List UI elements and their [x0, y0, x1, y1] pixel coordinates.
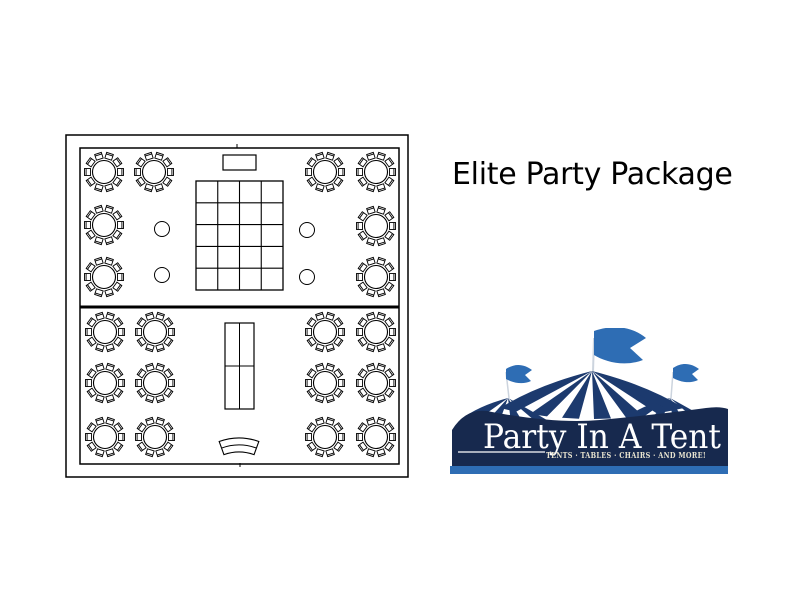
flag-icon [506, 365, 532, 383]
round-table [306, 363, 345, 402]
cake-table [223, 155, 256, 170]
chair [357, 380, 363, 387]
chair [155, 184, 164, 192]
chair [146, 395, 155, 403]
chair [164, 318, 173, 327]
chair [377, 184, 386, 192]
chair [106, 449, 115, 457]
chair [87, 423, 96, 432]
chair [316, 395, 325, 403]
logo-tagline: TENTS · TABLES · CHAIRS · AND MORE! [546, 451, 706, 461]
chair [367, 312, 376, 320]
chair [119, 434, 125, 441]
chair [385, 442, 394, 451]
chair [334, 369, 343, 378]
chair [118, 222, 124, 229]
chair [306, 434, 312, 441]
chair [105, 237, 114, 245]
chair [326, 449, 335, 457]
chair [113, 263, 122, 272]
chair [307, 388, 316, 397]
chair [137, 369, 146, 378]
chair [358, 231, 367, 240]
chair [334, 318, 343, 327]
chair [114, 318, 123, 327]
chair [377, 206, 386, 214]
chair [136, 380, 142, 387]
chair [385, 282, 394, 291]
chair [86, 282, 95, 291]
chair [105, 184, 114, 192]
table-top [365, 426, 388, 449]
chair [86, 263, 95, 272]
chair [146, 417, 155, 425]
chair [316, 312, 325, 320]
chair [106, 312, 115, 320]
chair [367, 184, 376, 192]
chair [85, 274, 91, 281]
chair [137, 337, 146, 346]
chair [367, 152, 376, 160]
chair [87, 337, 96, 346]
chair [86, 434, 92, 441]
table-top [143, 161, 166, 184]
chair [390, 169, 396, 176]
chair [105, 257, 114, 265]
table-top [314, 426, 337, 449]
chair [367, 238, 376, 246]
chair [85, 222, 91, 229]
chair [357, 329, 363, 336]
chair [367, 257, 376, 265]
chair [119, 380, 125, 387]
chair [377, 449, 386, 457]
chair [136, 329, 142, 336]
chair [95, 152, 104, 160]
chair [87, 388, 96, 397]
chair [358, 442, 367, 451]
chair [137, 442, 146, 451]
flag-pole [593, 338, 594, 372]
chair [358, 388, 367, 397]
chair [119, 329, 125, 336]
chair [307, 442, 316, 451]
round-table [357, 257, 396, 296]
chair [339, 169, 345, 176]
chair [169, 434, 175, 441]
chair [307, 423, 316, 432]
chair [146, 312, 155, 320]
chair [390, 380, 396, 387]
chair [96, 395, 105, 403]
chair [385, 212, 394, 221]
chair [307, 318, 316, 327]
chair [334, 158, 343, 167]
chair [164, 388, 173, 397]
chair [163, 158, 172, 167]
chair [326, 152, 335, 160]
chair [156, 395, 165, 403]
chair [306, 380, 312, 387]
round-table [86, 312, 125, 351]
chair [156, 417, 165, 425]
round-table [85, 205, 124, 244]
chair [145, 184, 154, 192]
chair [105, 289, 114, 297]
table-top [144, 372, 167, 395]
chair [156, 363, 165, 371]
table-top [93, 214, 116, 237]
chair [86, 230, 95, 239]
chair [357, 274, 363, 281]
chair [146, 363, 155, 371]
chair [316, 417, 325, 425]
round-table [357, 363, 396, 402]
chair [106, 363, 115, 371]
chair [86, 211, 95, 220]
table-top [314, 372, 337, 395]
chair [105, 152, 114, 160]
chair [118, 169, 124, 176]
chair [326, 344, 335, 352]
chair [385, 318, 394, 327]
chair [326, 417, 335, 425]
chair [137, 388, 146, 397]
round-table [86, 417, 125, 456]
table-top [93, 161, 116, 184]
chair [106, 344, 115, 352]
chair [377, 395, 386, 403]
flag-icon [673, 364, 699, 382]
chair [164, 423, 173, 432]
chair [377, 417, 386, 425]
page-title: Elite Party Package [452, 157, 733, 192]
chair [164, 369, 173, 378]
chair [367, 363, 376, 371]
round-table [136, 312, 175, 351]
chair [357, 434, 363, 441]
table-top [365, 266, 388, 289]
table-top [314, 161, 337, 184]
banner-strip [450, 466, 728, 474]
table-top [365, 215, 388, 238]
chair [96, 363, 105, 371]
cocktail-table [300, 270, 315, 285]
chair [114, 369, 123, 378]
table-top [365, 372, 388, 395]
chair [358, 177, 367, 186]
round-table [86, 363, 125, 402]
round-table [357, 152, 396, 191]
chair [106, 417, 115, 425]
chair [385, 369, 394, 378]
chair [377, 238, 386, 246]
round-table [136, 417, 175, 456]
chair [339, 329, 345, 336]
flag-icon [594, 328, 646, 363]
chair [316, 363, 325, 371]
chair [114, 337, 123, 346]
party-in-a-tent-logo: Party In A Tent TENTS · TABLES · CHAIRS … [448, 328, 732, 478]
chair [326, 312, 335, 320]
round-table [306, 312, 345, 351]
round-table [136, 363, 175, 402]
chair [96, 417, 105, 425]
chair [385, 423, 394, 432]
chair [339, 380, 345, 387]
chair [95, 257, 104, 265]
chair [316, 449, 325, 457]
chair [163, 177, 172, 186]
chair [385, 388, 394, 397]
chair [358, 337, 367, 346]
chair [357, 223, 363, 230]
chair [377, 152, 386, 160]
chair [105, 205, 114, 213]
chair [377, 344, 386, 352]
round-table [357, 206, 396, 245]
chair [358, 318, 367, 327]
chair [96, 344, 105, 352]
round-table [306, 152, 345, 191]
chair [307, 369, 316, 378]
chair [113, 230, 122, 239]
chair [96, 312, 105, 320]
chair [316, 152, 325, 160]
chair [367, 344, 376, 352]
chair [146, 344, 155, 352]
chair [385, 231, 394, 240]
chair [95, 289, 104, 297]
chair [385, 158, 394, 167]
chair [377, 289, 386, 297]
chair [156, 312, 165, 320]
round-table [357, 312, 396, 351]
chair [390, 274, 396, 281]
chair [87, 369, 96, 378]
chair [86, 177, 95, 186]
chair [95, 237, 104, 245]
table-top [144, 321, 167, 344]
chair [390, 434, 396, 441]
table-top [94, 321, 117, 344]
table-top [365, 321, 388, 344]
table-top [314, 321, 337, 344]
chair [96, 449, 105, 457]
chair [87, 442, 96, 451]
floor-plan [0, 0, 430, 510]
chair [169, 329, 175, 336]
chair [136, 177, 145, 186]
chair [118, 274, 124, 281]
chair [306, 329, 312, 336]
chair [326, 184, 335, 192]
chair [306, 169, 312, 176]
chair [358, 423, 367, 432]
chair [326, 363, 335, 371]
chair [164, 337, 173, 346]
chair [367, 417, 376, 425]
chair [136, 434, 142, 441]
serpentine-table [219, 438, 259, 455]
chair [358, 158, 367, 167]
chair [113, 177, 122, 186]
chair [334, 423, 343, 432]
chair [87, 318, 96, 327]
chair [145, 152, 154, 160]
chair [358, 212, 367, 221]
cocktail-table [300, 223, 315, 238]
cocktail-table [155, 268, 170, 283]
table-top [365, 161, 388, 184]
chair [334, 442, 343, 451]
chair [164, 442, 173, 451]
chair [137, 423, 146, 432]
table-top [144, 426, 167, 449]
chair [334, 337, 343, 346]
chair [95, 184, 104, 192]
chair [385, 337, 394, 346]
chair [113, 158, 122, 167]
chair [357, 169, 363, 176]
chair [86, 329, 92, 336]
logo-banner: Party In A Tent TENTS · TABLES · CHAIRS … [450, 407, 728, 474]
chair [377, 363, 386, 371]
chair [377, 257, 386, 265]
chair [316, 344, 325, 352]
chair [334, 177, 343, 186]
chair [86, 158, 95, 167]
chair [339, 434, 345, 441]
chair [377, 312, 386, 320]
chair [390, 223, 396, 230]
chair [169, 380, 175, 387]
chair [156, 344, 165, 352]
chair [334, 388, 343, 397]
chair [113, 211, 122, 220]
dance-floor [196, 181, 283, 290]
buffet-table [225, 323, 254, 409]
round-table [306, 417, 345, 456]
chair [385, 263, 394, 272]
round-table [85, 257, 124, 296]
chair [307, 158, 316, 167]
chair [358, 282, 367, 291]
chair [367, 206, 376, 214]
round-table [357, 417, 396, 456]
chair [106, 395, 115, 403]
chair [358, 369, 367, 378]
chair [136, 158, 145, 167]
flag-pole [671, 372, 673, 398]
chair [168, 169, 174, 176]
chair [85, 169, 91, 176]
round-table [85, 152, 124, 191]
table-top [94, 426, 117, 449]
chair [137, 318, 146, 327]
table-top [94, 372, 117, 395]
chair [367, 289, 376, 297]
table-top [93, 266, 116, 289]
round-table [135, 152, 174, 191]
chair [326, 395, 335, 403]
chair [114, 423, 123, 432]
tent-icon [460, 328, 708, 423]
chair [86, 380, 92, 387]
chair [316, 184, 325, 192]
chair [367, 395, 376, 403]
chair [114, 388, 123, 397]
cocktail-table [155, 222, 170, 237]
chair [367, 449, 376, 457]
chair [114, 442, 123, 451]
chair [146, 449, 155, 457]
chair [135, 169, 141, 176]
chair [155, 152, 164, 160]
chair [358, 263, 367, 272]
chair [113, 282, 122, 291]
chair [156, 449, 165, 457]
chair [95, 205, 104, 213]
chair [307, 177, 316, 186]
chair [307, 337, 316, 346]
chair [385, 177, 394, 186]
chair [390, 329, 396, 336]
